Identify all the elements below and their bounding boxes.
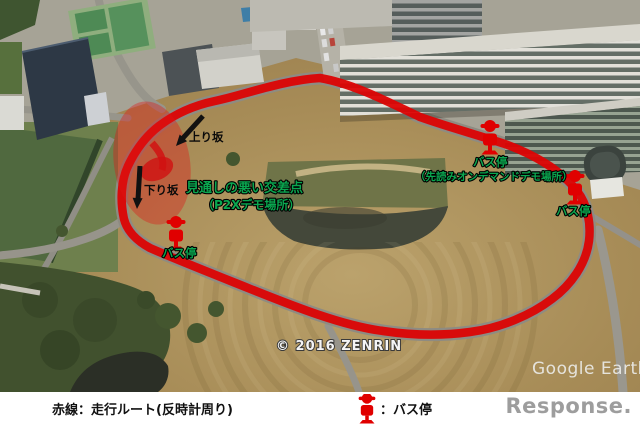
bus-stop-ondemand-sub-label: （先読みオンデマンドデモ場所）	[415, 170, 573, 183]
bus-stop-ondemand-label: バス停	[473, 155, 508, 169]
legend-bus-stop-icon	[358, 394, 376, 424]
uphill-label: 上り坂	[189, 130, 224, 144]
screenshot-root: 上り坂 下り坂 見通しの悪い交差点 （P2Xデモ場所） バス停 バス停 （先読み…	[0, 0, 640, 424]
bus-stop-right-label: バス停	[556, 204, 591, 218]
google-earth-watermark: Google Earth	[532, 359, 640, 379]
intersection-sub-label: （P2Xデモ場所）	[202, 197, 300, 212]
intersection-label: 見通しの悪い交差点	[185, 180, 303, 196]
legend-route-text: 赤線：走行ルート(反時計周り)	[52, 399, 233, 418]
bus-stop-left-label: バス停	[162, 246, 197, 260]
response-logo: Response.	[505, 394, 632, 418]
legend-bar: 赤線：走行ルート(反時計周り) ：バス停 Response.	[0, 392, 640, 424]
zenrin-credit: © 2016 ZENRIN	[276, 339, 402, 354]
aerial-map-image: 上り坂 下り坂 見通しの悪い交差点 （P2Xデモ場所） バス停 バス停 （先読み…	[0, 0, 640, 392]
legend-bus-stop-text: ：バス停	[380, 399, 432, 418]
downhill-label: 下り坂	[144, 183, 179, 197]
